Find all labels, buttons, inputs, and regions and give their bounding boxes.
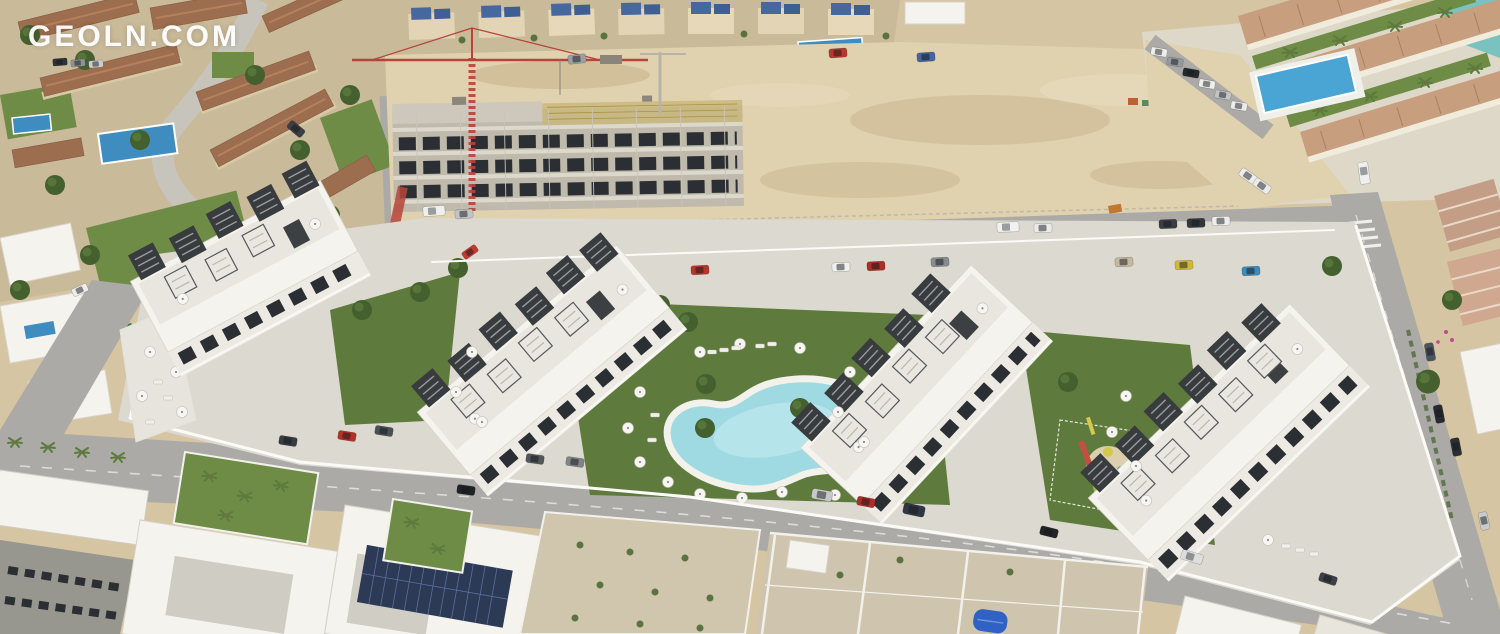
parked-car xyxy=(691,265,709,275)
parked-car xyxy=(1034,223,1052,233)
scene-canvas xyxy=(0,0,1500,634)
parked-car xyxy=(53,58,68,66)
aerial-photo: GEOLN.COM xyxy=(0,0,1500,634)
parked-van xyxy=(997,222,1019,233)
parked-car xyxy=(1115,257,1133,267)
parked-car xyxy=(1212,216,1230,226)
watermark: GEOLN.COM xyxy=(28,20,240,54)
construction-building xyxy=(392,92,744,212)
parked-van xyxy=(423,205,446,217)
parked-car xyxy=(1242,266,1260,276)
lawn-2 xyxy=(383,499,472,573)
parked-car xyxy=(1175,260,1193,270)
parked-car xyxy=(1159,219,1177,229)
parked-car xyxy=(89,60,104,68)
parked-car xyxy=(931,257,949,267)
parked-car xyxy=(1187,218,1205,228)
parked-car xyxy=(455,209,474,219)
parked-car xyxy=(832,262,850,272)
parked-car xyxy=(867,261,885,271)
parked-car xyxy=(829,48,848,58)
parked-car xyxy=(568,54,587,65)
gravel-lot xyxy=(520,512,760,634)
parked-car xyxy=(917,52,936,62)
parked-car xyxy=(71,59,86,67)
